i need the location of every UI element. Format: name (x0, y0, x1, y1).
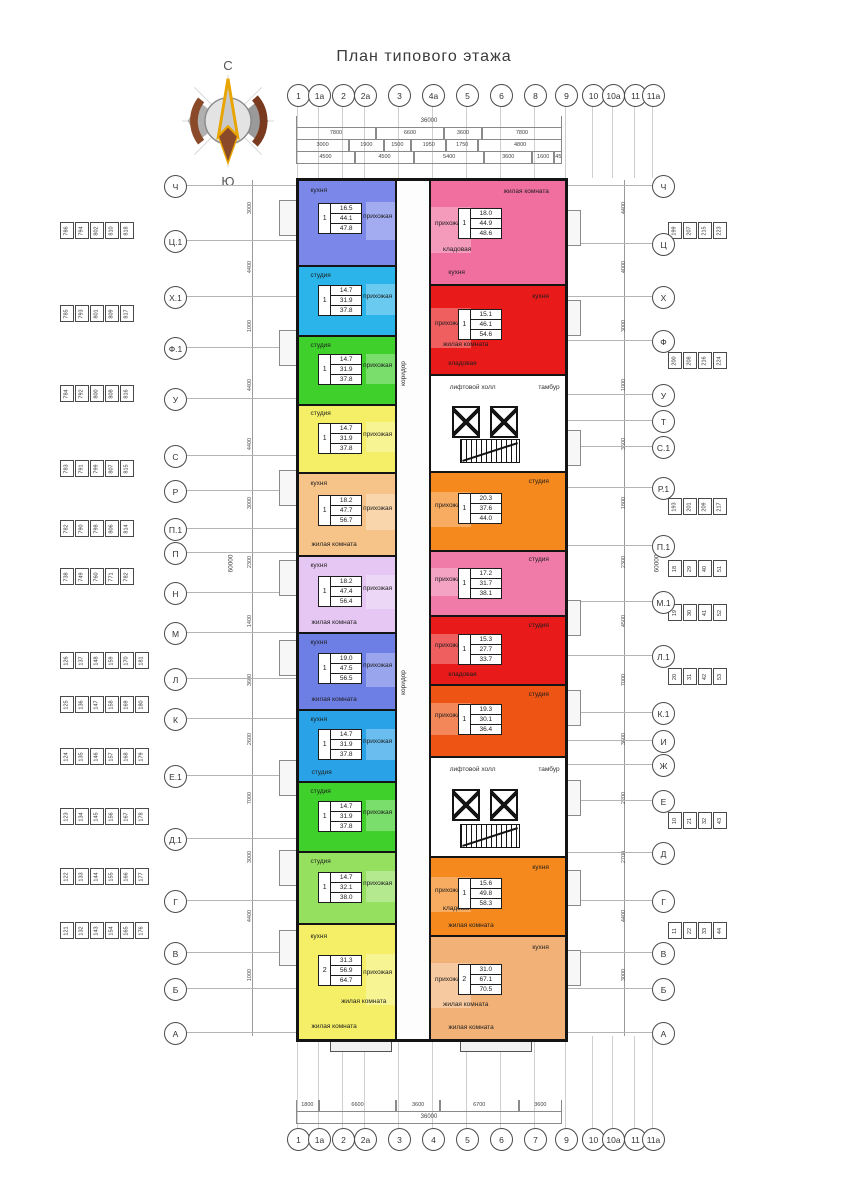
area-values: 31.067.170.5 (471, 965, 501, 994)
kitchen-area: 18.0 (471, 209, 501, 219)
dimension-segment-right: 4400 (621, 910, 627, 922)
dimension-rail-right (624, 180, 625, 1036)
unit-number: 792 (75, 385, 89, 402)
room-label: студия (311, 858, 331, 865)
dimension-segment-left: 1400 (247, 615, 253, 627)
unit-number: 125 (60, 696, 74, 713)
room-label: жилая комната (311, 619, 356, 626)
total-area: 37.8 (331, 822, 361, 831)
area-values: 19.047.556.5 (331, 654, 361, 683)
apartment-area-badge: 118.247.456.4 (318, 576, 362, 607)
stair-elevator-core: лифтовой холлтамбур (431, 758, 565, 858)
dimension-segment-right: 1800 (621, 497, 627, 509)
dimension-segment-left: 3000 (247, 497, 253, 509)
balcony (279, 200, 297, 236)
living-area: 37.6 (471, 504, 501, 514)
axis-circle-right-Е: Е (652, 790, 675, 813)
unit-number: 208 (683, 352, 697, 369)
living-area: 49.8 (471, 889, 501, 899)
area-values: 14.731.937.8 (331, 355, 361, 384)
living-area: 46.1 (471, 320, 501, 330)
hallway-area (366, 575, 395, 609)
unit-number: 126 (60, 652, 74, 669)
grid-line (634, 106, 635, 178)
floor-plan-canvas: План типового этажа С Ю 36000 7800660036… (0, 0, 848, 1200)
area-values: 15.649.858.3 (471, 879, 501, 908)
unit-number: 177 (135, 868, 149, 885)
unit-number: 783 (60, 460, 74, 477)
unit-number: 147 (90, 696, 104, 713)
room-count: 1 (319, 802, 331, 831)
apartments-column-right: жилая комнатаприхожаякухнякладовая118.04… (431, 181, 565, 1039)
apartment-area-badge: 119.047.556.5 (318, 653, 362, 684)
axis-leader (186, 185, 296, 186)
dimension-segment: 3600 (396, 1100, 439, 1111)
axis-leader (186, 240, 296, 241)
total-area: 33.7 (471, 655, 501, 664)
axis-circle-left-Л: Л (164, 668, 187, 691)
unit-number-strip-left: 123134145156167178 (60, 808, 149, 825)
apartment-area-badge: 118.247.756.7 (318, 495, 362, 526)
unit-number: 158 (105, 696, 119, 713)
living-area: 31.9 (331, 812, 361, 822)
axis-circle-bottom-1: 1 (287, 1128, 310, 1151)
unit-number: 200 (668, 352, 682, 369)
axis-circle-bottom-3: 3 (388, 1128, 411, 1151)
axis-circle-top-4а: 4а (422, 84, 445, 107)
dimension-row: 7800660036007800 (296, 128, 562, 140)
kitchen-area: 17.2 (471, 569, 501, 579)
axis-circle-top-11а: 11а (642, 84, 665, 107)
kitchen-area: 16.5 (331, 204, 361, 214)
unit-number: 207 (683, 222, 697, 239)
axis-circle-top-2: 2 (332, 84, 355, 107)
axis-circle-left-П: П (164, 542, 187, 565)
axis-leader (186, 398, 296, 399)
room-label: кухня (448, 269, 465, 276)
axis-circle-top-1а: 1а (308, 84, 331, 107)
dimension-segment-left: 1000 (247, 320, 253, 332)
unit-number-strip-right: 199207215223 (668, 222, 727, 239)
dimension-segment: 1900 (349, 140, 383, 151)
axis-circle-left-А: А (164, 1022, 187, 1045)
unit-number: 40 (698, 560, 712, 577)
room-label: кладовая (448, 360, 476, 367)
room-count: 1 (319, 355, 331, 384)
room-label: жилая комната (311, 1023, 356, 1030)
compass-south-label: Ю (178, 174, 278, 189)
unit-number-strip-right: 18294051 (668, 560, 727, 577)
room-label: жилая комната (448, 1024, 493, 1031)
axis-circle-right-Ф: Ф (652, 330, 675, 353)
living-area: 47.4 (331, 587, 361, 597)
apartment-area-badge: 120.337.644.0 (458, 493, 502, 524)
axis-circle-top-6: 6 (490, 84, 513, 107)
room-label: студия (529, 691, 549, 698)
unit-number: 785 (60, 305, 74, 322)
unit-number: 135 (75, 748, 89, 765)
room-count: 1 (319, 424, 331, 453)
axis-circle-left-М: М (164, 622, 187, 645)
axis-leader (562, 988, 652, 989)
elevator-icon (490, 789, 518, 821)
apartment-unit: студияприхожая114.731.937.8 (299, 406, 395, 474)
apartments-column-left: кухняприхожая116.544.147.8студияприхожая… (299, 181, 395, 1039)
dimension-overall-top: 36000 (296, 116, 562, 128)
apartment-unit: студияприхожая117.231.738.1 (431, 552, 565, 617)
apartment-unit: студияприхожая119.330.136.4 (431, 686, 565, 758)
apartment-unit: студияприхожая114.731.937.8 (299, 783, 395, 853)
unit-number: 41 (698, 604, 712, 621)
corridor-label: коридор (400, 361, 407, 386)
dimension-segment-right: 3600 (621, 733, 627, 745)
unit-number: 146 (90, 748, 104, 765)
corridor-label: коридор (400, 670, 407, 695)
area-values: 17.231.738.1 (471, 569, 501, 598)
room-label: студия (311, 769, 331, 776)
unit-number: 816 (120, 385, 134, 402)
living-area: 31.9 (331, 296, 361, 306)
dimension-segment-left: 4400 (247, 438, 253, 450)
axis-circle-right-Л.1: Л.1 (652, 645, 675, 668)
living-area: 31.9 (331, 365, 361, 375)
unit-number: 10 (668, 812, 682, 829)
dimension-segment-right: 3600 (621, 438, 627, 450)
area-values: 14.731.937.8 (331, 730, 361, 759)
unit-number-strip-left: 786794802810818 (60, 222, 134, 239)
unit-number: 178 (135, 808, 149, 825)
room-label: студия (311, 342, 331, 349)
area-values: 31.356.964.7 (331, 956, 361, 985)
living-area: 56.9 (331, 966, 361, 976)
apartment-unit: кухняприхожая116.544.147.8 (299, 181, 395, 267)
unit-number: 807 (105, 460, 119, 477)
unit-number-strip-left: 783791799807815 (60, 460, 134, 477)
room-label: студия (311, 410, 331, 417)
unit-number-strip-left: 738749760771782 (60, 568, 134, 585)
room-count: 1 (319, 873, 331, 902)
apartment-unit: кухняприхожаяжилая комната119.047.556.5 (299, 634, 395, 711)
total-area: 56.5 (331, 674, 361, 683)
apartment-area-badge: 114.731.937.8 (318, 801, 362, 832)
axis-circle-left-Х.1: Х.1 (164, 286, 187, 309)
dimension-segment: 3600 (484, 152, 532, 163)
room-count: 1 (319, 286, 331, 315)
total-area: 37.8 (331, 375, 361, 384)
unit-number: 53 (713, 668, 727, 685)
apartment-area-badge: 114.731.937.8 (318, 285, 362, 316)
axis-circle-top-9: 9 (555, 84, 578, 107)
axis-circle-right-Ч: Ч (652, 175, 675, 198)
axis-leader (562, 420, 652, 421)
room-count: 1 (319, 496, 331, 525)
axis-leader (562, 545, 652, 546)
room-label: студия (529, 478, 549, 485)
unit-number: 18 (668, 560, 682, 577)
unit-number-strip-right: 19304152 (668, 604, 727, 621)
axis-leader (562, 296, 652, 297)
kitchen-area: 14.7 (331, 730, 361, 740)
dimension-segment: 450 (554, 152, 562, 163)
axis-leader (562, 487, 652, 488)
axis-leader (562, 740, 652, 741)
axis-leader (186, 296, 296, 297)
dimension-segment-right: 4400 (621, 202, 627, 214)
total-area: 38.1 (471, 589, 501, 598)
room-label: прихожая (363, 738, 392, 745)
axis-circle-right-Б: Б (652, 978, 675, 1001)
total-area: 56.7 (331, 516, 361, 525)
unit-number: 784 (60, 385, 74, 402)
unit-number: 790 (75, 520, 89, 537)
unit-number: 808 (105, 385, 119, 402)
axis-circle-left-Г: Г (164, 890, 187, 913)
unit-number: 217 (713, 498, 727, 515)
dimension-segment: 6700 (440, 1100, 519, 1111)
axis-circle-right-И: И (652, 730, 675, 753)
unit-number: 52 (713, 604, 727, 621)
living-area: 31.9 (331, 434, 361, 444)
balcony (279, 560, 297, 596)
hallway-area (366, 494, 395, 530)
apartment-unit: кухняприхожаяжилая комнатакладовая115.64… (431, 858, 565, 937)
dimension-segment-right: 4000 (621, 261, 627, 273)
balcony (279, 330, 297, 366)
room-label: прихожая (363, 585, 392, 592)
room-label: жилая комната (311, 696, 356, 703)
area-values: 20.337.644.0 (471, 494, 501, 523)
elevator-icon (452, 406, 480, 438)
area-values: 16.544.147.8 (331, 204, 361, 233)
apartment-area-badge: 115.327.733.7 (458, 634, 502, 665)
unit-number: 793 (75, 305, 89, 322)
kitchen-area: 19.3 (471, 705, 501, 715)
unit-number-strip-left: 782790798806814 (60, 520, 134, 537)
apartment-area-badge: 114.731.937.8 (318, 354, 362, 385)
kitchen-area: 14.7 (331, 286, 361, 296)
dimension-overall-left: 60000 (228, 554, 235, 572)
unit-number: 179 (135, 748, 149, 765)
unit-number-strip-right: 10213243 (668, 812, 727, 829)
unit-number: 122 (60, 868, 74, 885)
apartment-unit: кухняприхожаяжилая комната118.247.456.4 (299, 557, 395, 634)
axis-circle-left-Д.1: Д.1 (164, 828, 187, 851)
dimension-segment: 3000 (296, 140, 349, 151)
axis-leader (562, 852, 652, 853)
kitchen-area: 18.2 (331, 577, 361, 587)
room-label: жилая комната (443, 1001, 488, 1008)
dimension-segment: 3600 (519, 1100, 562, 1111)
kitchen-area: 15.1 (471, 310, 501, 320)
dimension-segment: 1500 (384, 140, 412, 151)
room-label: жилая комната (504, 188, 549, 195)
area-values: 14.731.937.8 (331, 802, 361, 831)
apartment-area-badge: 117.231.738.1 (458, 568, 502, 599)
room-label: жилая комната (311, 541, 356, 548)
axis-circle-right-В: В (652, 942, 675, 965)
unit-number: 801 (90, 305, 104, 322)
room-label: прихожая (363, 431, 392, 438)
room-label: кухня (311, 562, 328, 569)
dimension-segment-left: 1000 (247, 969, 253, 981)
axis-circle-left-У: У (164, 388, 187, 411)
hallway-area (366, 202, 395, 240)
apartment-area-badge: 115.649.858.3 (458, 878, 502, 909)
room-label: прихожая (363, 969, 392, 976)
total-area: 70.5 (471, 985, 501, 994)
unit-number: 20 (668, 668, 682, 685)
axis-circle-top-5: 5 (456, 84, 479, 107)
apartment-area-badge: 114.731.937.8 (318, 423, 362, 454)
apartment-area-badge: 118.044.948.6 (458, 208, 502, 239)
total-area: 64.7 (331, 976, 361, 985)
dimension-segment: 6600 (376, 128, 444, 139)
unit-number: 157 (105, 748, 119, 765)
axis-circle-bottom-10а: 10а (602, 1128, 625, 1151)
axis-leader (186, 988, 296, 989)
grid-line (612, 106, 613, 178)
dimension-segment: 7800 (296, 128, 376, 139)
room-label: кладовая (448, 671, 476, 678)
axis-leader (562, 1032, 652, 1033)
grid-line (652, 1036, 653, 1128)
unit-number-strip-left: 124135146157168179 (60, 748, 149, 765)
dimension-segment-left: 2300 (247, 556, 253, 568)
grid-line (634, 1036, 635, 1128)
unit-number: 137 (75, 652, 89, 669)
dimension-segment-right: 1000 (621, 379, 627, 391)
unit-number-strip-left: 121132143154165176 (60, 922, 149, 939)
unit-number: 794 (75, 222, 89, 239)
apartment-unit: студияприхожая114.732.138.0 (299, 853, 395, 925)
living-area: 27.7 (471, 645, 501, 655)
axis-leader (562, 394, 652, 395)
unit-number: 166 (120, 868, 134, 885)
axis-leader (562, 185, 652, 186)
room-label: прихожая (363, 362, 392, 369)
living-area: 47.5 (331, 664, 361, 674)
page-title: План типового этажа (0, 48, 848, 66)
dimension-segment: 4800 (478, 140, 562, 151)
area-values: 15.146.154.6 (471, 310, 501, 339)
unit-number: 169 (120, 696, 134, 713)
kitchen-area: 19.0 (331, 654, 361, 664)
room-count: 1 (459, 310, 471, 339)
central-corridor: коридоркоридор (395, 181, 431, 1039)
unit-number: 145 (90, 808, 104, 825)
dimension-segment-right: 2200 (621, 792, 627, 804)
room-label: жилая комната (448, 922, 493, 929)
dimension-segment-right: 3000 (621, 320, 627, 332)
dimension-row: 18006600360067003600 (296, 1100, 562, 1112)
axis-leader (186, 552, 296, 553)
living-area: 44.9 (471, 219, 501, 229)
balcony (279, 760, 297, 796)
axis-circle-top-3: 3 (388, 84, 411, 107)
room-label: кладовая (443, 246, 471, 253)
axis-circle-right-К.1: К.1 (652, 702, 675, 725)
area-values: 18.044.948.6 (471, 209, 501, 238)
unit-number-strip-left: 784792800808816 (60, 385, 134, 402)
elevator-hall-label: лифтовой холл (450, 766, 496, 773)
living-area: 31.9 (331, 740, 361, 750)
dimension-segment: 3600 (444, 128, 482, 139)
unit-number: 798 (90, 520, 104, 537)
axis-circle-left-Ц.1: Ц.1 (164, 230, 187, 253)
unit-number: 168 (120, 748, 134, 765)
axis-circle-top-8: 8 (524, 84, 547, 107)
axis-leader (186, 455, 296, 456)
room-label: кухня (311, 716, 328, 723)
axis-leader (562, 764, 652, 765)
axis-circle-right-С.1: С.1 (652, 436, 675, 459)
unit-number: 21 (683, 812, 697, 829)
axis-circle-left-Ф.1: Ф.1 (164, 337, 187, 360)
unit-number: 201 (683, 498, 697, 515)
unit-number: 760 (90, 568, 104, 585)
room-label: кухня (311, 933, 328, 940)
room-count: 1 (459, 705, 471, 734)
unit-number: 810 (105, 222, 119, 239)
dimension-row: 45004500540036001600450 (296, 152, 562, 164)
living-area: 47.7 (331, 506, 361, 516)
unit-number: 224 (713, 352, 727, 369)
unit-number: 154 (105, 922, 119, 939)
unit-number: 22 (683, 922, 697, 939)
axis-circle-left-Р: Р (164, 480, 187, 503)
room-count: 1 (459, 569, 471, 598)
axis-circle-top-10а: 10а (602, 84, 625, 107)
dimension-segment: 1750 (446, 140, 478, 151)
unit-number: 818 (120, 222, 134, 239)
unit-number: 31 (683, 668, 697, 685)
living-area: 67.1 (471, 975, 501, 985)
apartment-unit: кухняприхожаяжилая комнатажилая комната2… (431, 937, 565, 1039)
kitchen-area: 14.7 (331, 424, 361, 434)
balcony (279, 640, 297, 676)
apartment-unit: студияприхожая120.337.644.0 (431, 473, 565, 552)
grid-line (565, 1036, 566, 1128)
axis-circle-left-Е.1: Е.1 (164, 765, 187, 788)
room-label: кухня (311, 639, 328, 646)
dimension-segment-left: 4400 (247, 261, 253, 273)
dimension-segment: 1950 (411, 140, 446, 151)
apartment-unit: кухняприхожаяжилая комната118.247.756.7 (299, 474, 395, 556)
unit-number: 33 (698, 922, 712, 939)
axis-circle-left-Ч: Ч (164, 175, 187, 198)
apartment-unit: студияприхожая114.731.937.8 (299, 337, 395, 405)
unit-number: 771 (105, 568, 119, 585)
total-area: 37.8 (331, 750, 361, 759)
dimension-row: 300019001500195017504800 (296, 140, 562, 152)
unit-number: 165 (120, 922, 134, 939)
room-count: 1 (459, 635, 471, 664)
unit-number: 791 (75, 460, 89, 477)
unit-number-strip-left: 122133144155166177 (60, 868, 149, 885)
dimension-segment-left: 4400 (247, 910, 253, 922)
axis-circle-left-С: С (164, 445, 187, 468)
unit-number: 132 (75, 922, 89, 939)
unit-number: 42 (698, 668, 712, 685)
room-label: кухня (311, 480, 328, 487)
room-label: кухня (532, 864, 549, 871)
unit-number: 148 (90, 652, 104, 669)
room-count: 1 (459, 879, 471, 908)
dimension-segment-left: 3000 (247, 851, 253, 863)
area-values: 14.731.937.8 (331, 286, 361, 315)
unit-number: 749 (75, 568, 89, 585)
apartment-area-badge: 114.732.138.0 (318, 872, 362, 903)
